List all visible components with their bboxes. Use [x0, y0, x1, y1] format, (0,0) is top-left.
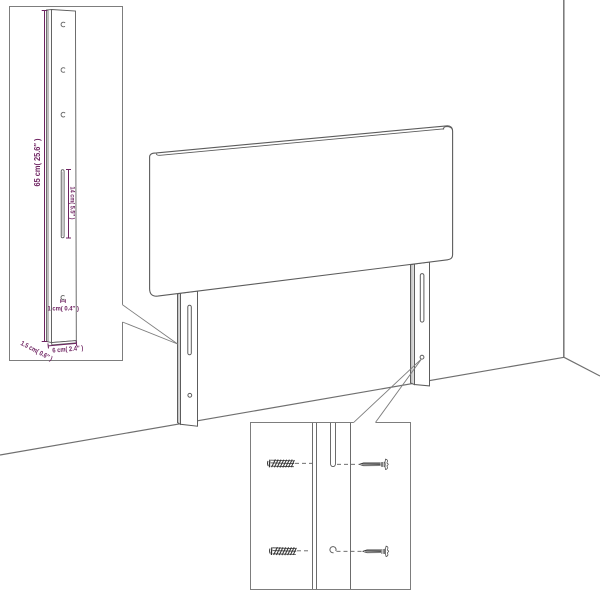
svg-text:14 cm( 5.5″ ): 14 cm( 5.5″ )	[68, 187, 75, 220]
svg-text:1 cm( 0.4″ ): 1 cm( 0.4″ )	[47, 305, 79, 312]
svg-text:65 cm( 25.6″ ): 65 cm( 25.6″ )	[33, 138, 42, 186]
svg-text:6 cm( 2.4″ ): 6 cm( 2.4″ )	[52, 345, 83, 355]
